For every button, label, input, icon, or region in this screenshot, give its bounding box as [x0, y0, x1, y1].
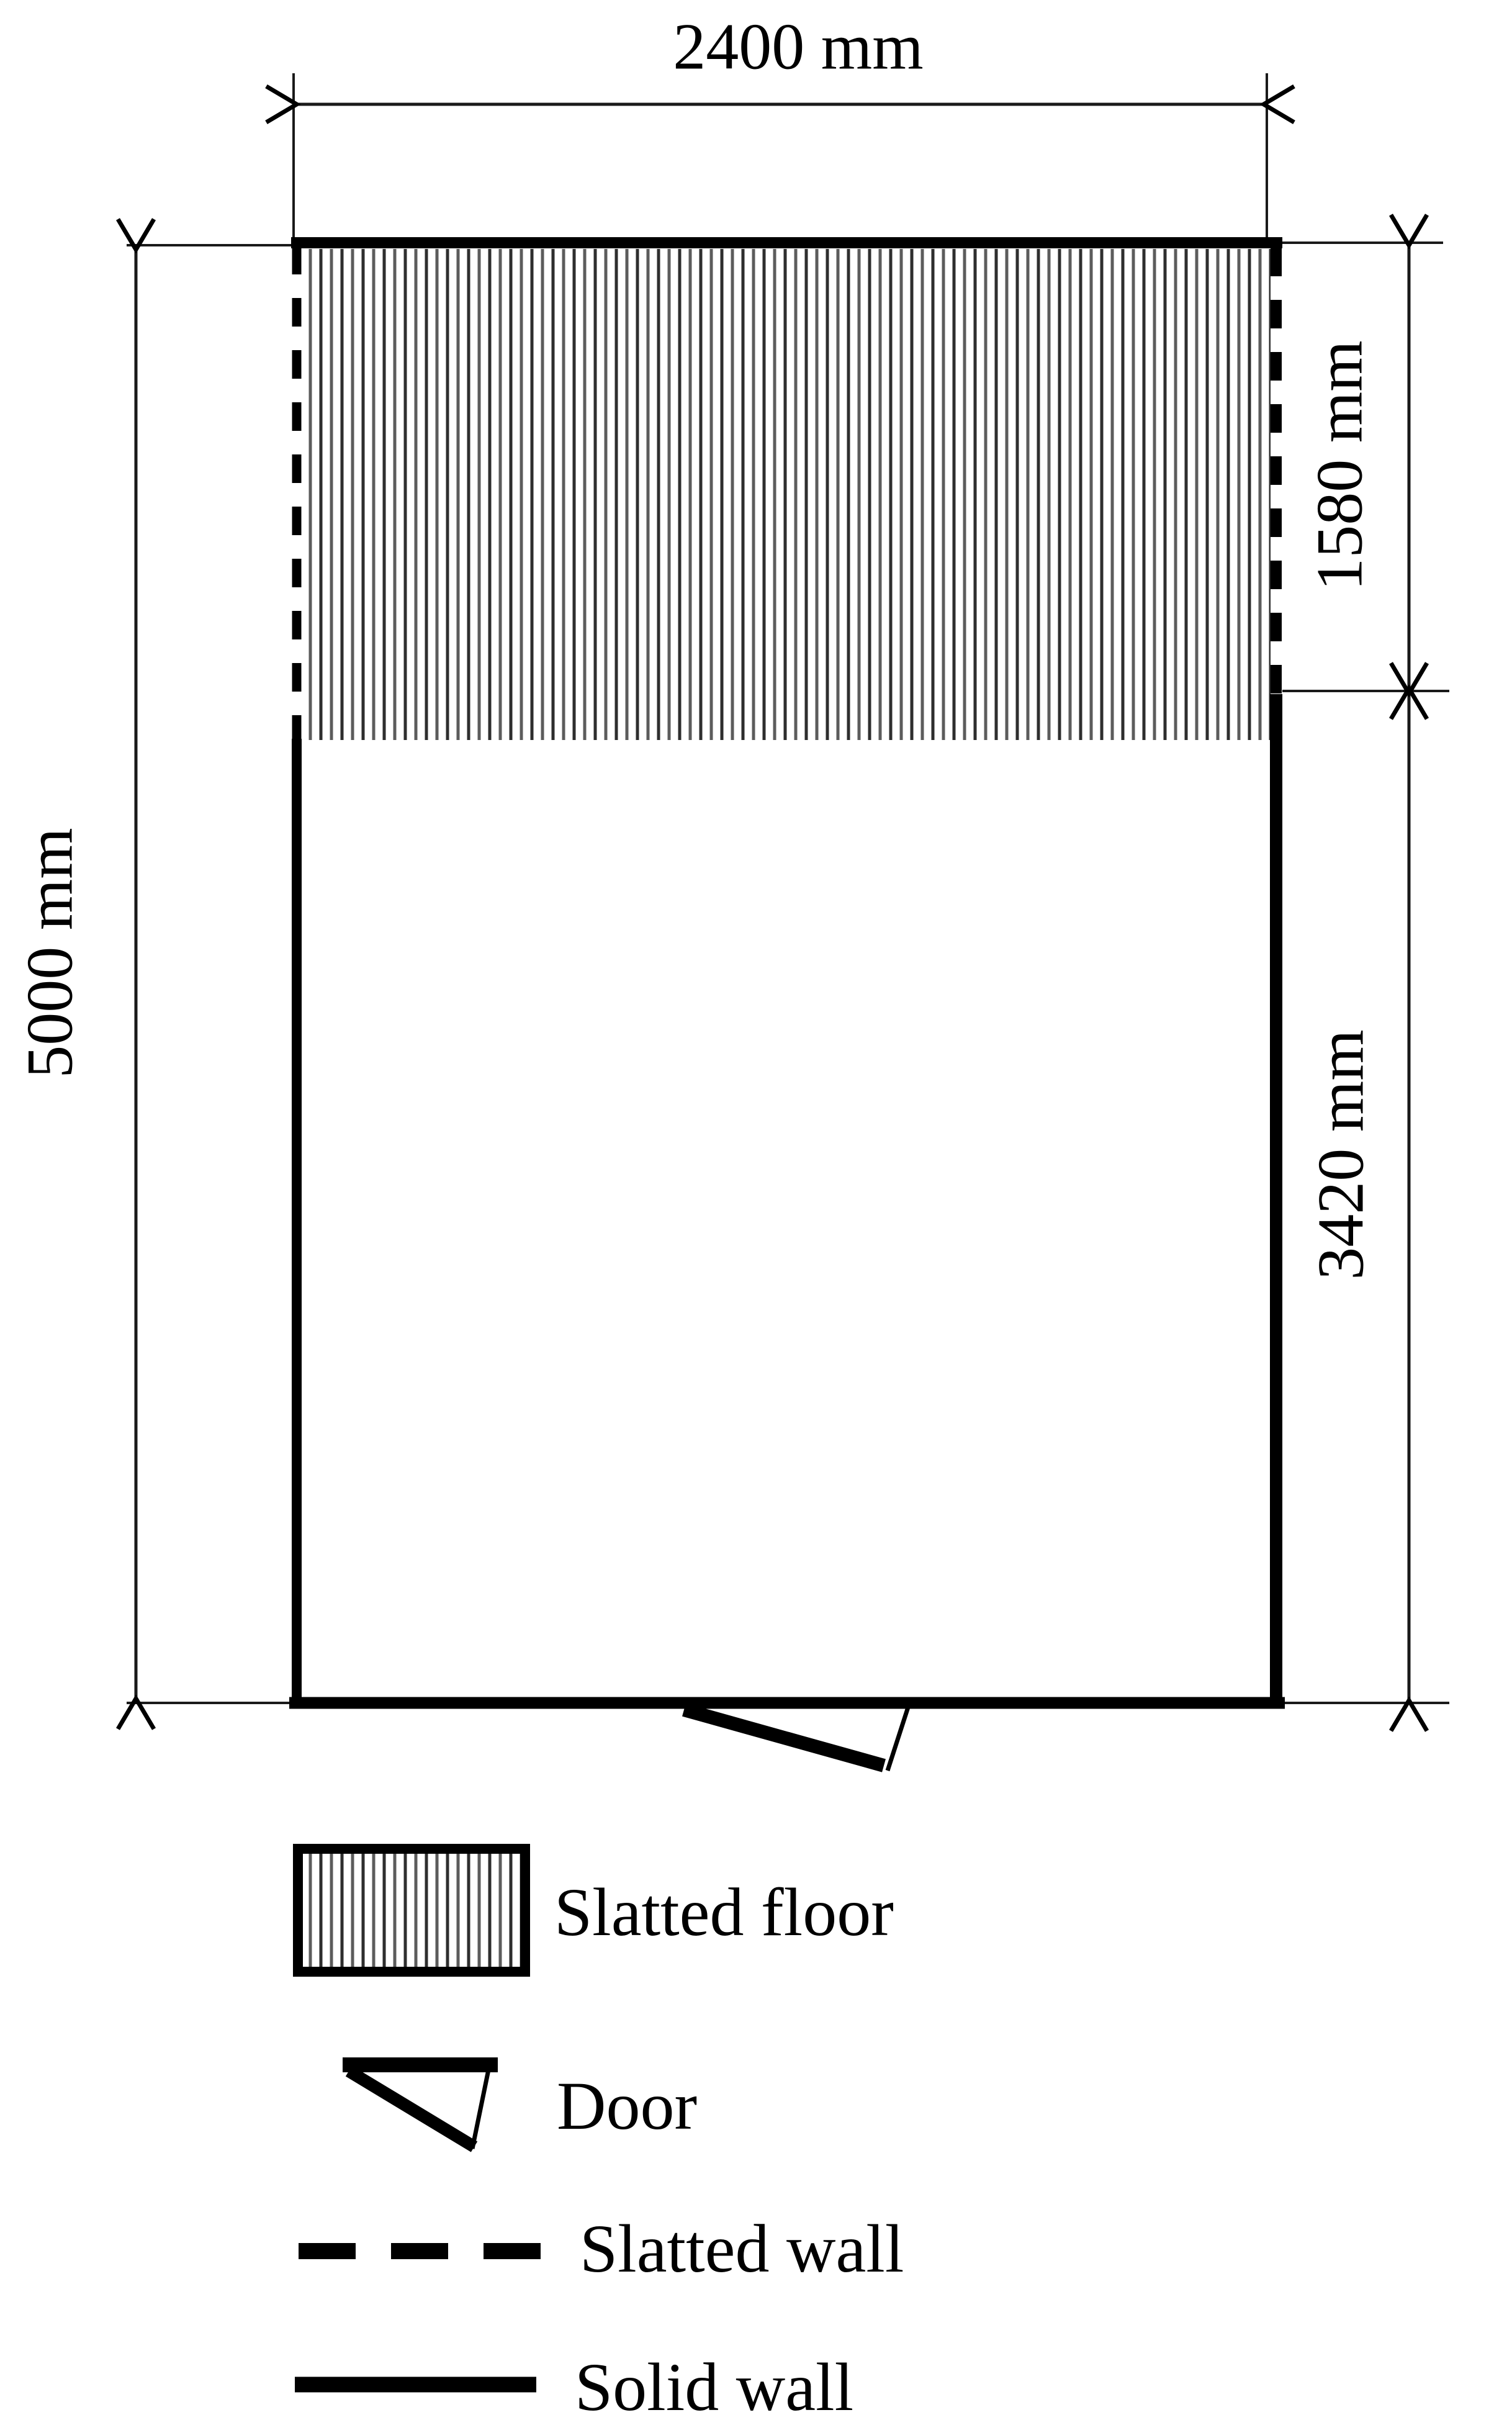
legend-item-door: Door	[343, 2065, 697, 2149]
door-icon	[343, 2065, 498, 2149]
slatted-floor-area	[302, 249, 1271, 740]
solid-wall-label: Solid wall	[575, 2349, 853, 2425]
pen-width-label: 2400 mm	[673, 11, 923, 83]
door-swing-line	[472, 2070, 488, 2149]
slatted-floor-swatch	[298, 1849, 525, 1972]
slatted-section-label: 1580 mm	[1303, 340, 1376, 590]
dimension-slatted-section: 1580 mm	[1282, 243, 1449, 691]
legend-item-slatted-floor: Slatted floor	[298, 1849, 894, 1972]
dimension-pen-width: 2400 mm	[294, 11, 1267, 238]
door-leaf-line	[349, 2071, 474, 2147]
door-leaf-line	[684, 1710, 884, 1766]
door-label: Door	[557, 2068, 697, 2144]
dimension-solid-section: 3420 mm	[1285, 695, 1449, 1703]
floor-plan-svg: 2400 mm 5000 mm 1580 mm 3420 mm Slatted …	[0, 0, 1512, 2433]
slatted-wall-label: Slatted wall	[580, 2211, 904, 2286]
door-symbol-plan	[684, 1707, 908, 1771]
dimension-pen-length: 5000 mm	[14, 245, 292, 1703]
floor-plan-figure: 2400 mm 5000 mm 1580 mm 3420 mm Slatted …	[0, 0, 1512, 2433]
solid-section-label: 3420 mm	[1305, 1029, 1377, 1280]
slatted-floor-label: Slatted floor	[554, 1874, 894, 1950]
pen-plan	[289, 243, 1285, 1771]
legend-item-solid-wall: Solid wall	[295, 2349, 853, 2425]
legend-item-slatted-wall: Slatted wall	[299, 2211, 904, 2286]
legend: Slatted floor Door Slatted wall Solid wa…	[295, 1849, 904, 2425]
door-swing-line	[888, 1707, 908, 1771]
pen-length-label: 5000 mm	[14, 828, 86, 1078]
